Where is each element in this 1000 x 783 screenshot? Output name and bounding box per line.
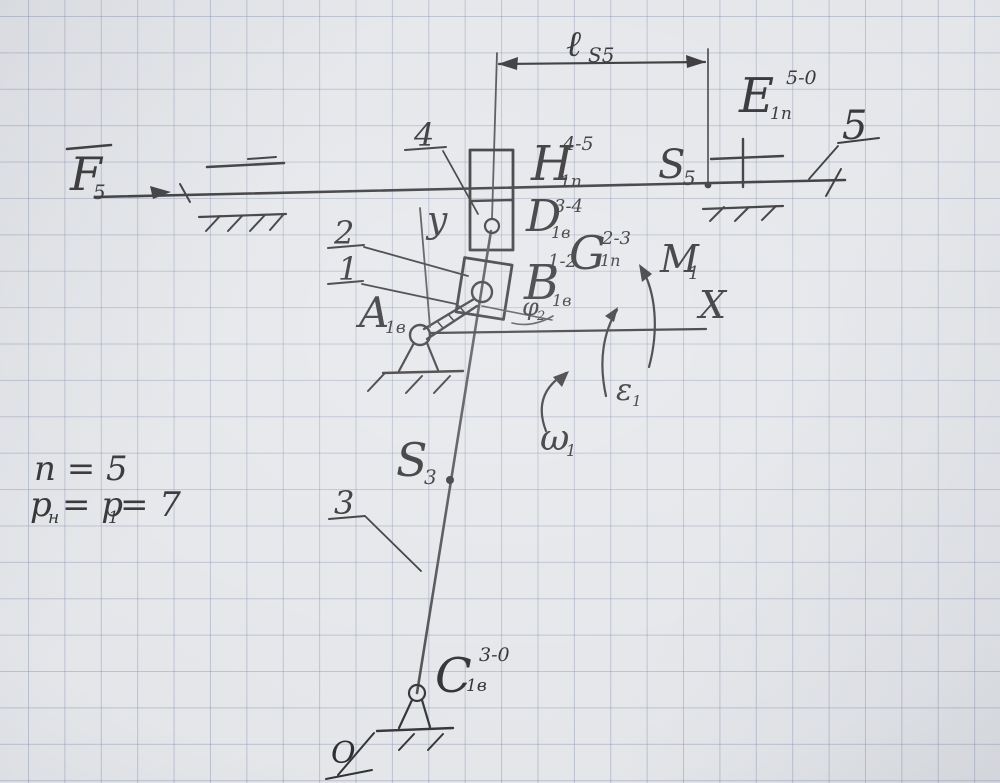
support-A — [368, 343, 463, 393]
point-S3-dot — [446, 476, 454, 484]
support-C-leg-right — [422, 700, 430, 727]
hatch-line — [437, 321, 443, 328]
support-A-hatch — [368, 374, 450, 393]
label-D-sub: 1в — [551, 223, 571, 242]
hatch-line — [368, 374, 384, 391]
given-n-equation: n = 5 — [34, 449, 128, 489]
label-phi2-sub: 2 — [536, 309, 545, 324]
leader-2 — [364, 247, 468, 276]
label-link3: 3 — [334, 484, 354, 522]
leader-5 — [809, 146, 838, 179]
label-B-sub: 1в — [552, 291, 572, 310]
label-epsilon1-main: ε — [616, 373, 632, 408]
hatch-line — [270, 215, 283, 230]
support-C-leg-left — [399, 700, 412, 728]
label-S5-main: S — [658, 142, 685, 188]
dim-extension-left — [492, 53, 497, 219]
label-lS5-main: ℓ — [566, 24, 581, 65]
force-F5-arrowhead — [150, 186, 171, 199]
force-F5-tick — [180, 184, 190, 202]
label-H-sub: 1п — [560, 172, 582, 192]
kinematic-scheme-drawing: F 5 ℓ S5 H 4-5 1п E 5-0 1п S 5 5 D 3-4 1… — [0, 0, 1000, 783]
dimension-lS5 — [492, 49, 711, 219]
guide-left-hatch — [206, 215, 283, 231]
M1-arrow — [641, 267, 655, 367]
support-C-ground-line — [377, 728, 453, 731]
label-omega1-sub: 1 — [566, 441, 576, 460]
slider4-mid-line — [470, 200, 513, 201]
label-E-sub: 1п — [770, 104, 792, 124]
epsilon1-arrow — [602, 310, 617, 396]
given-p-end: = 7 — [120, 485, 181, 525]
guide-left-dash — [248, 157, 276, 159]
label-S5-sub: 5 — [683, 166, 696, 190]
hatch-line — [762, 206, 776, 220]
label-E-sup: 5-0 — [786, 67, 817, 89]
hatch-line — [228, 216, 242, 231]
label-C-sup: 3-0 — [479, 644, 510, 666]
O-underline — [326, 770, 372, 779]
label-axis-y: y — [425, 200, 448, 241]
omega1-arrowhead — [553, 371, 569, 387]
guide-left-top-line — [207, 163, 284, 167]
given-p-mid-sub: 1 — [108, 508, 119, 528]
label-M1-sub: 1 — [688, 263, 699, 284]
label-G-sup: 2-3 — [601, 228, 631, 249]
hatch-line — [434, 376, 450, 393]
label-link1: 1 — [338, 250, 358, 288]
label-epsilon1-sub: 1 — [632, 392, 642, 410]
label-omega1-main: ω — [540, 418, 569, 459]
label-C-sub: 1в — [466, 676, 487, 696]
label-G-sub: 1п — [600, 251, 620, 270]
epsilon1-arrowhead — [605, 307, 618, 322]
label-D-sup: 3-4 — [554, 196, 583, 217]
given-p-sub: н — [48, 508, 59, 528]
M1-arrowhead — [639, 264, 652, 282]
hatch-line — [406, 376, 422, 393]
label-A-sub: 1в — [385, 318, 406, 338]
guide-right-ground-line — [703, 206, 783, 209]
guide-right-cross-horizontal — [711, 156, 783, 159]
label-lS5-sub: S5 — [588, 43, 614, 67]
label-link5: 5 — [842, 103, 867, 149]
support-A-ground-line — [383, 371, 463, 373]
hatch-line — [428, 734, 443, 750]
label-link4: 4 — [413, 116, 434, 154]
leader-4 — [443, 151, 478, 214]
leader-lines — [67, 138, 879, 571]
graph-paper-sheet: F 5 ℓ S5 H 4-5 1п E 5-0 1п S 5 5 D 3-4 1… — [0, 0, 1000, 783]
label-axis-x: X — [696, 283, 728, 327]
guide-right-symbol — [703, 139, 783, 221]
label-S3-main: S — [396, 433, 428, 487]
leader-3 — [366, 517, 421, 571]
label-E-main: E — [738, 68, 774, 124]
hatch-line — [448, 314, 454, 321]
dim-arrow-right — [686, 55, 706, 68]
hatch-line — [206, 216, 220, 231]
hatch-line — [250, 216, 264, 231]
hatch-line — [399, 734, 414, 750]
label-H-sup: 4-5 — [562, 133, 594, 155]
label-point-O: O — [331, 736, 356, 771]
label-link2: 2 — [333, 214, 354, 252]
support-A-leg-left — [399, 343, 414, 371]
label-F5-sub: 5 — [93, 180, 106, 204]
label-S3-sub: 3 — [424, 465, 437, 489]
hatch-line — [735, 207, 749, 221]
dim-arrow-left — [498, 57, 518, 70]
link5-end-tick — [826, 169, 841, 196]
point-S5-dot — [705, 182, 712, 189]
axis-x-line — [430, 329, 706, 333]
support-A-leg-right — [427, 343, 438, 370]
